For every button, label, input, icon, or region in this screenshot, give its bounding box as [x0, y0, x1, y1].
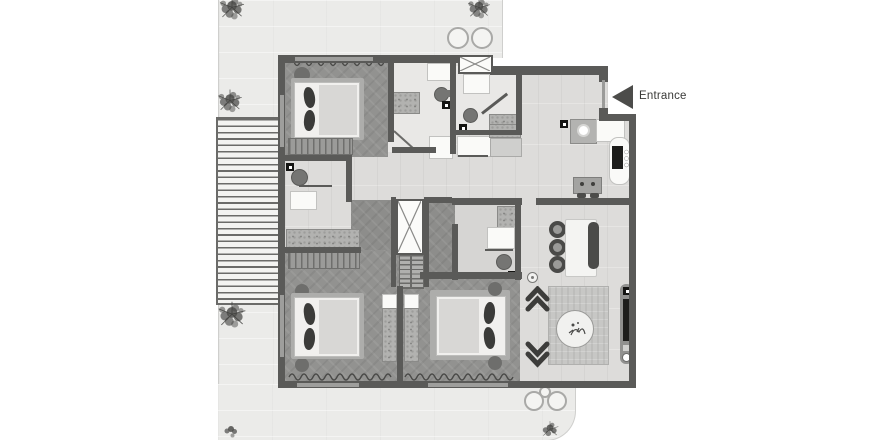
pouf [488, 282, 502, 296]
pouf [295, 358, 309, 372]
toilet [463, 108, 478, 123]
table-round [291, 169, 308, 186]
bed [294, 297, 360, 357]
exterior-wall [629, 138, 636, 388]
pillow [303, 327, 316, 350]
exterior-wall [490, 66, 608, 75]
desk-chair [496, 254, 512, 270]
shower-tray [463, 74, 490, 94]
interior-wall [516, 66, 522, 134]
armchair [525, 340, 550, 368]
closet [457, 136, 491, 157]
fixture-icon [560, 120, 568, 128]
plant-icon [218, 422, 244, 440]
window [280, 295, 284, 357]
terrace-bottom [218, 384, 576, 440]
interior-wall [450, 62, 456, 154]
plant-icon [216, 0, 248, 24]
interior-wall [388, 62, 394, 142]
spot-marker [527, 272, 538, 283]
counter-line [299, 185, 332, 187]
kitchen-island [573, 177, 602, 194]
washing-machine [570, 119, 597, 144]
stove [612, 146, 623, 169]
pillow [483, 326, 496, 349]
pillow [303, 86, 316, 108]
shaft-wall [424, 197, 429, 287]
cabinet [290, 191, 317, 210]
bed [294, 82, 360, 138]
wardrobe [288, 138, 353, 155]
elevator-shaft [396, 199, 424, 255]
wardrobe-open [404, 294, 419, 362]
exterior-wall [629, 114, 636, 140]
plant-icon [214, 300, 250, 332]
entrance-door-leaf [602, 80, 605, 110]
plant-icon [460, 0, 498, 22]
window [295, 57, 373, 61]
terrace-chair [524, 391, 544, 411]
window [297, 383, 359, 387]
interior-wall [536, 198, 636, 205]
wood-deck [216, 117, 280, 305]
terrace-chair [447, 27, 469, 49]
interior-wall [515, 198, 521, 280]
entrance-label: Entrance [639, 90, 687, 102]
fixture-icon [286, 163, 294, 171]
dining-chair [549, 221, 566, 238]
duvet [319, 85, 357, 135]
terrace-chair [471, 27, 493, 49]
wardrobe [288, 251, 360, 269]
terrace-chair [547, 391, 567, 411]
closet [490, 138, 522, 157]
wardrobe-open [382, 294, 397, 362]
interior-wall [420, 272, 522, 279]
duvet [319, 300, 357, 354]
shower-tray [427, 63, 451, 81]
closet-door-line [458, 155, 488, 157]
vanity-counter [392, 92, 420, 114]
interior-wall [346, 155, 352, 202]
entrance-arrow-icon [612, 85, 633, 109]
pillow [303, 302, 317, 325]
armchair [525, 286, 550, 312]
dining-chair [549, 239, 566, 256]
interior-wall [452, 198, 522, 205]
pouf [488, 356, 502, 370]
floor-plan: Entrance [0, 0, 890, 440]
interior-wall [456, 130, 522, 135]
pillow [483, 301, 497, 324]
coffee-table [556, 310, 594, 348]
interior-wall [392, 147, 436, 153]
dining-chair [549, 256, 566, 273]
plant-icon [532, 420, 568, 440]
duct-shaft [458, 55, 493, 74]
bed [436, 296, 506, 356]
interior-wall [429, 197, 452, 203]
desk-edge [485, 249, 513, 251]
duvet [439, 299, 479, 353]
interior-wall [285, 155, 352, 161]
interior-wall [397, 286, 403, 381]
interior-wall [285, 247, 361, 253]
plant-icon [214, 88, 246, 116]
window [428, 383, 508, 387]
pillow [303, 109, 316, 131]
window [280, 95, 284, 147]
desk [487, 227, 515, 249]
fixture-icon [442, 101, 450, 109]
dining-bench [588, 222, 599, 269]
